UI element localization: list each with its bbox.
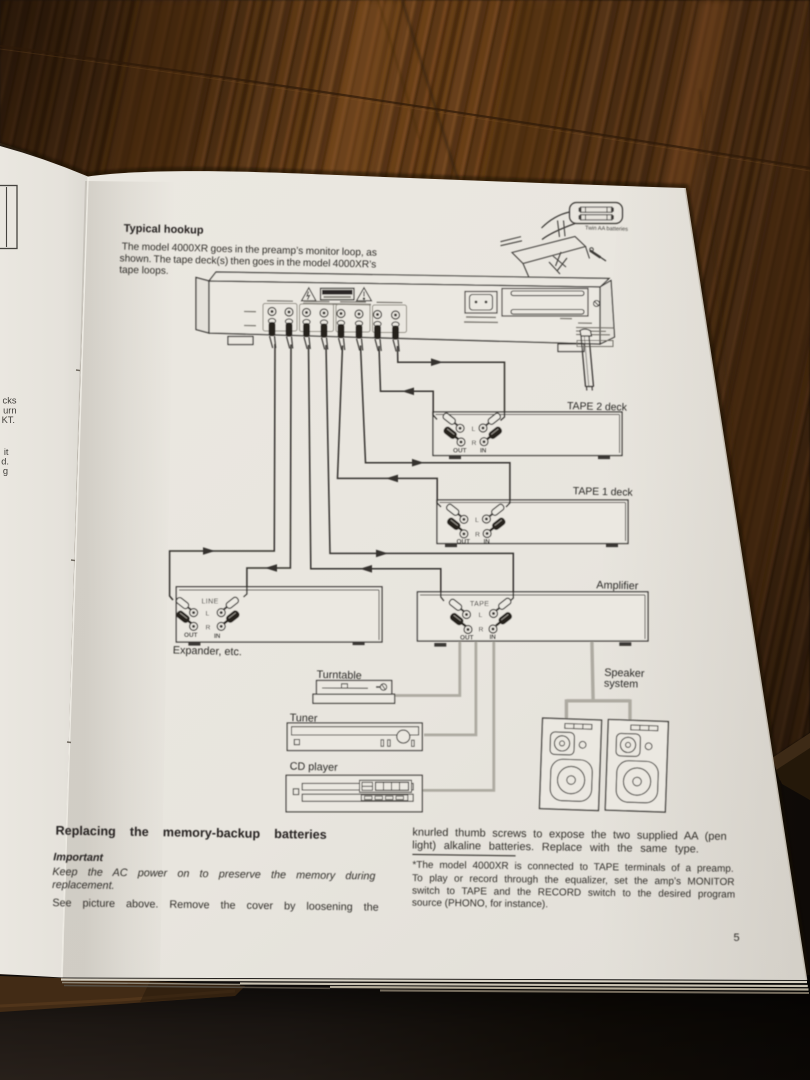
svg-text:L: L	[206, 611, 210, 618]
svg-text:5: 5	[734, 932, 740, 944]
svg-text:OUT: OUT	[457, 539, 471, 546]
svg-text:tape loops.: tape loops.	[119, 265, 169, 277]
svg-text:d.: d.	[1, 457, 9, 467]
svg-text:Important: Important	[53, 851, 103, 864]
svg-text:L: L	[475, 517, 479, 524]
svg-text:Twin AA batteries: Twin AA batteries	[585, 226, 628, 233]
svg-text:it: it	[4, 447, 9, 457]
svg-text:OUT: OUT	[184, 632, 198, 639]
svg-text:OUT: OUT	[453, 448, 467, 455]
svg-text:Typical hookup: Typical hookup	[124, 223, 204, 237]
svg-text:IN: IN	[484, 539, 491, 546]
svg-text:source (PHONO, for instance).: source (PHONO, for instance).	[412, 898, 548, 911]
svg-text:TAPE 1 deck: TAPE 1 deck	[573, 486, 634, 499]
svg-text:OUT: OUT	[460, 634, 474, 641]
svg-text:cks: cks	[3, 396, 17, 406]
svg-text:Expander, etc.: Expander, etc.	[173, 644, 242, 658]
svg-text:IN: IN	[480, 448, 487, 455]
svg-text:R: R	[479, 627, 484, 634]
svg-text:g: g	[3, 466, 8, 476]
svg-text:Amplifier: Amplifier	[596, 579, 639, 592]
svg-text:TAPE: TAPE	[470, 601, 489, 608]
svg-text:R: R	[475, 532, 480, 539]
svg-text:L: L	[479, 612, 483, 619]
svg-text:urn: urn	[3, 406, 16, 416]
svg-text:R: R	[472, 440, 477, 447]
svg-text:replacement.: replacement.	[52, 879, 115, 892]
svg-text:TAPE 2 deck: TAPE 2 deck	[567, 401, 628, 414]
svg-text:CD player: CD player	[290, 761, 339, 774]
svg-text:R: R	[206, 625, 211, 632]
svg-text:LINE: LINE	[202, 599, 219, 606]
svg-text:system: system	[604, 678, 639, 691]
svg-text:IN: IN	[214, 633, 221, 640]
svg-text:IN: IN	[490, 634, 497, 641]
svg-text:L: L	[472, 426, 476, 433]
svg-text:KT.: KT.	[2, 415, 15, 425]
